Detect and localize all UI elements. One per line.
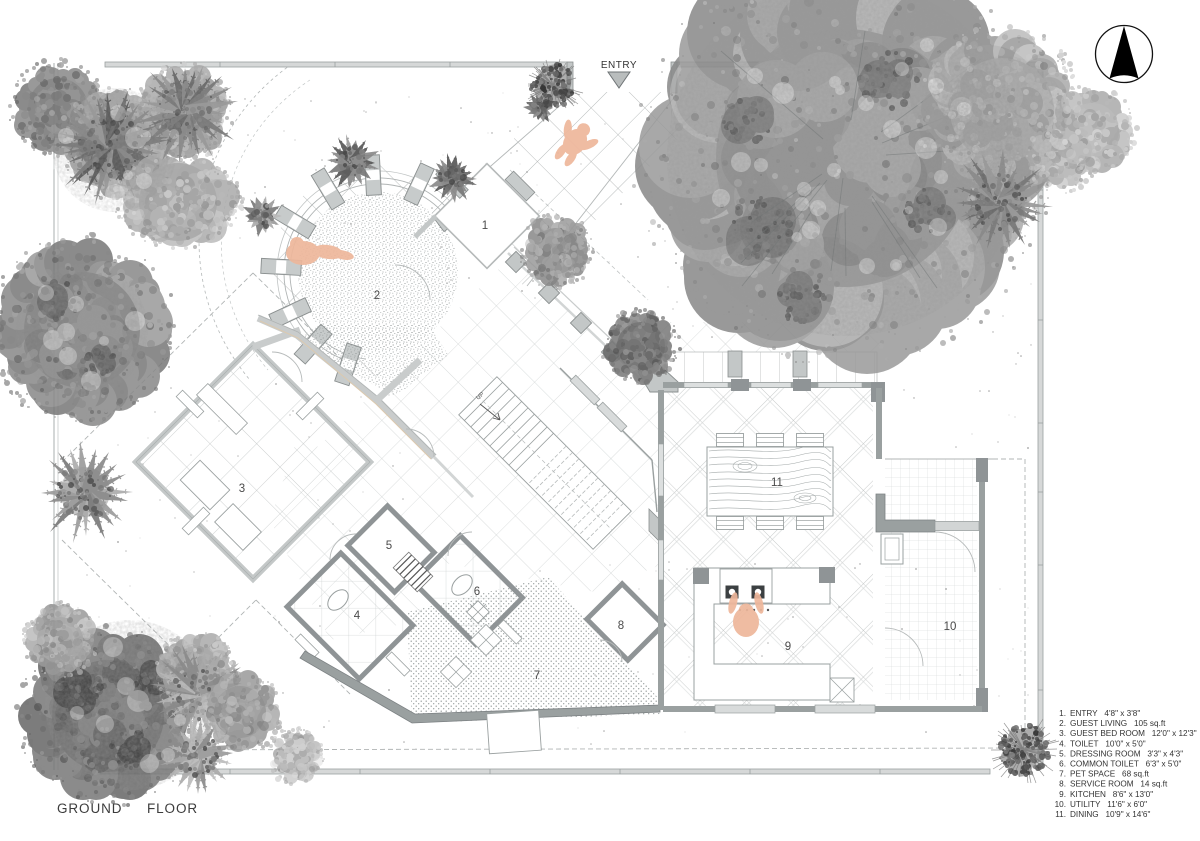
svg-text:ENTRY: ENTRY	[601, 60, 637, 71]
